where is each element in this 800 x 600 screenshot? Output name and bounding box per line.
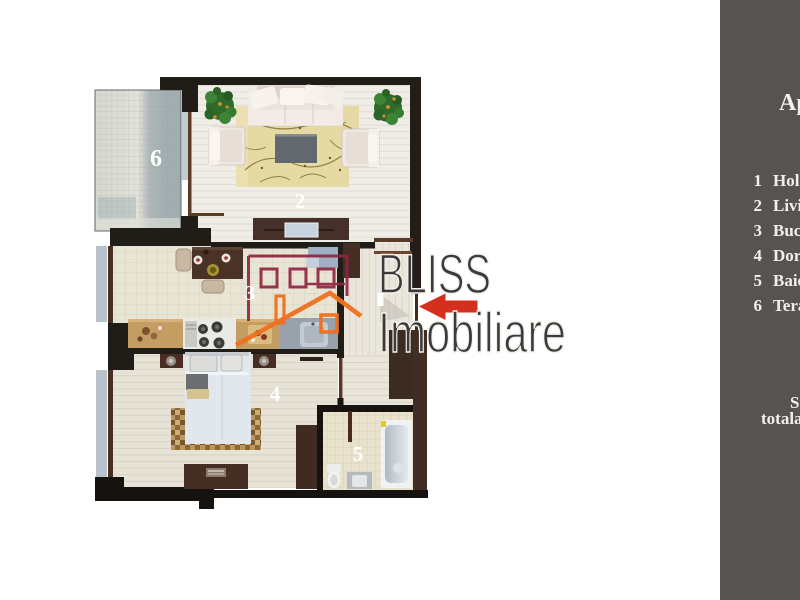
svg-text:4: 4 — [270, 382, 281, 406]
svg-text:Baie: Baie — [773, 271, 800, 290]
svg-text:Bucatarie: Bucatarie — [773, 221, 800, 240]
svg-text:Imobiliare: Imobiliare — [378, 301, 566, 365]
svg-text:Apartament: Apartament — [779, 90, 800, 116]
svg-text:5: 5 — [754, 271, 763, 290]
svg-text:4: 4 — [754, 246, 763, 265]
svg-text:1: 1 — [754, 171, 763, 190]
svg-text:3: 3 — [754, 221, 763, 240]
svg-text:Living: Living — [773, 196, 800, 215]
svg-text:3: 3 — [245, 281, 256, 305]
svg-text:BLISS: BLISS — [378, 242, 491, 305]
svg-text:5: 5 — [353, 442, 364, 466]
svg-text:Hol: Hol — [773, 171, 800, 190]
svg-text:Dormitor: Dormitor — [773, 246, 800, 265]
svg-text:Terasa: Terasa — [773, 296, 800, 315]
svg-text:6: 6 — [150, 146, 162, 172]
svg-text:totala = 52 mp: totala = 52 mp — [761, 409, 800, 428]
svg-text:2: 2 — [295, 189, 306, 213]
svg-text:2: 2 — [754, 196, 763, 215]
svg-text:6: 6 — [754, 296, 763, 315]
